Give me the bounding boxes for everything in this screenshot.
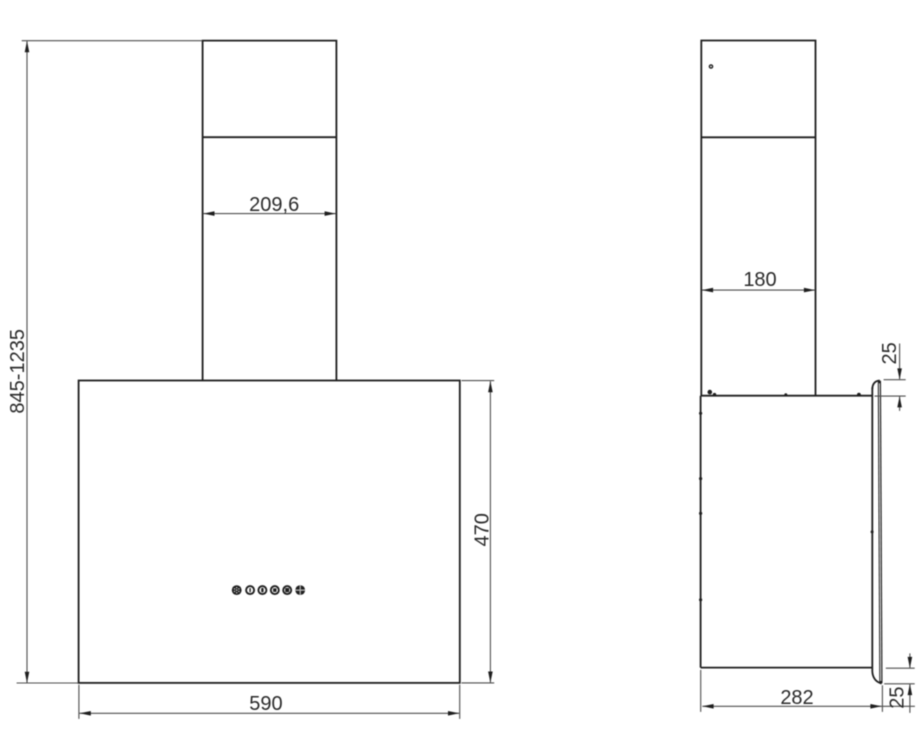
svg-text:25: 25 (879, 342, 901, 364)
svg-text:845-1235: 845-1235 (7, 329, 29, 414)
svg-text:25: 25 (887, 686, 909, 708)
svg-text:180: 180 (743, 269, 776, 291)
svg-text:282: 282 (780, 687, 813, 709)
svg-text:470: 470 (472, 513, 494, 546)
svg-text:590: 590 (249, 693, 282, 715)
svg-text:209,6: 209,6 (249, 194, 299, 216)
